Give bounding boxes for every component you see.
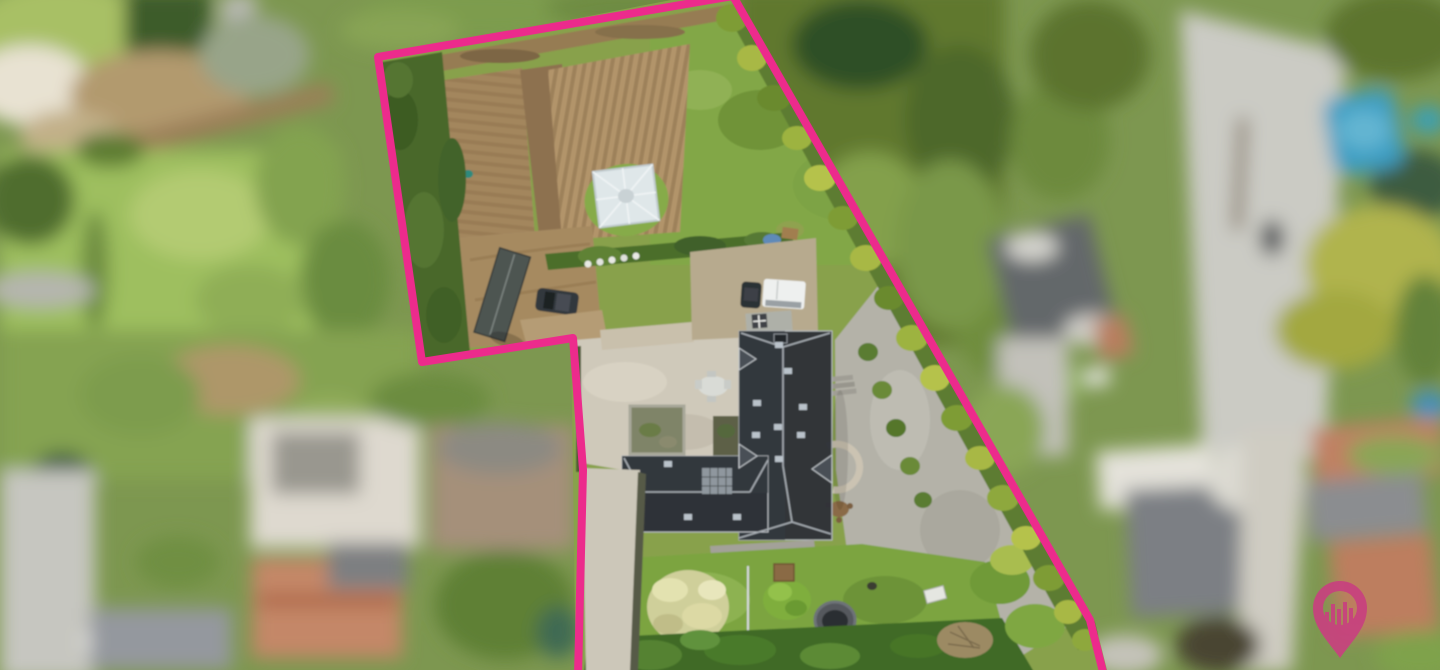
green-tree [763, 580, 811, 620]
aerial-photo [0, 0, 1440, 670]
aerial-photo-stage [0, 0, 1440, 670]
north-patio [745, 310, 792, 333]
dark-car [740, 281, 762, 308]
wooden-crate [774, 564, 794, 581]
roof-window-array [702, 468, 732, 494]
chimney [774, 334, 787, 343]
walled-courtyard [630, 406, 684, 454]
white-camper-van [762, 279, 806, 310]
